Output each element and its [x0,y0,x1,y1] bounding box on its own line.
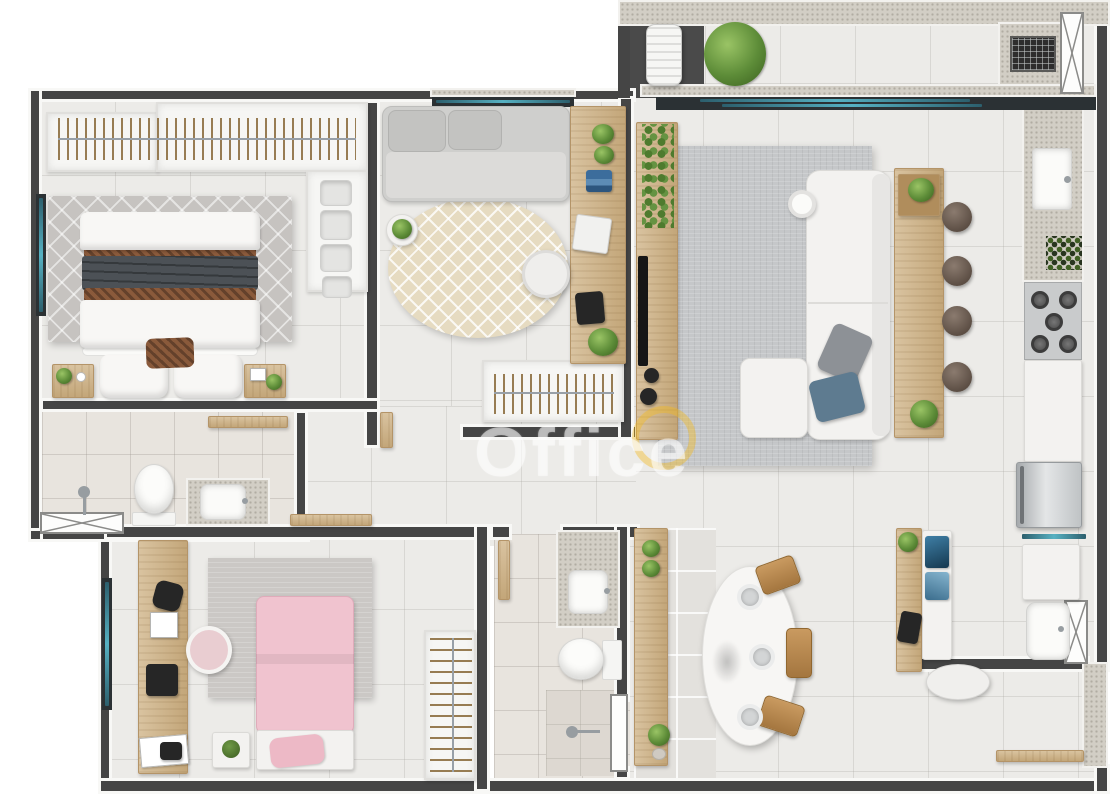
built-in-grill [1010,36,1056,72]
bed-accent-pillow [145,337,194,369]
console-plant-bottom [910,400,938,428]
bar-stool-2 [942,256,972,286]
living-side-table [788,190,816,218]
folded-linen-1 [320,180,352,206]
burner-top-left [1031,291,1049,309]
laundry-glass-shelf [1022,534,1086,539]
office-desk-plant-2 [594,146,614,164]
bed-duvet-fold [80,212,260,250]
bath2-door-leaf [498,540,510,600]
folded-linen-2 [320,210,352,240]
bath1-shower-stem [83,497,86,515]
tv [638,256,648,366]
office-sofa-pillow-2 [448,110,502,150]
nook-hutch-decor-1 [925,536,949,568]
kids-single-bed [256,596,354,774]
sideboard-plant-2 [642,560,660,577]
burner-center [1045,313,1063,331]
bath1-sink-basin [200,484,246,520]
sideboard-plant-1 [642,540,660,557]
kitchen-faucet [1064,176,1071,183]
bath1-toilet-bowl [134,464,174,514]
sofa-back-cushions [872,174,890,436]
bath2-toilet-tank [602,640,622,680]
office-desk-plant-3 [588,328,618,356]
sliding-door-glass-2 [722,104,982,107]
dining-centerpiece [712,640,742,684]
master-closet-rail [58,138,356,140]
bath1-faucet [242,498,248,504]
bath1-toilet-tank [132,512,176,526]
office-desk-chair [522,250,570,298]
wall-right-lower [1094,764,1110,794]
sideboard-plant-3 [648,724,670,746]
window-x-glyph [42,514,122,532]
bar-stool-4 [942,362,972,392]
console-plant-top [908,178,934,202]
office-sofa-seat [386,152,566,198]
kids-bed-pillow [269,733,326,768]
watermark-text: Office [474,412,690,492]
nook-desk-plant [898,532,918,552]
kids-bed-duvet [256,596,354,734]
office-closet-rail [494,392,614,394]
laundry-tub [1026,602,1070,660]
tv-panel-trailing-plant [642,124,674,228]
sofa-ottoman [740,358,808,438]
entry-granite-column [1082,662,1108,768]
place-setting-2 [749,644,775,670]
bath1-door-leaf [208,416,288,428]
office-desk-plant-1 [592,124,614,144]
sliding-door-glass-1 [700,99,970,102]
refrigerator [1016,462,1082,528]
office-desk-books [586,170,612,192]
sideboard-pot [652,748,666,760]
nightstand-right-frame [250,368,266,381]
office-closet-hangers [494,374,614,414]
gas-cooktop [1024,282,1082,360]
kids-closet-rail [452,638,454,772]
office-door-leaf [380,412,393,448]
bed-throw-blanket [82,256,258,290]
office-window-glass [436,100,570,103]
bar-stool-1 [942,202,972,232]
kids-window-glass [105,582,109,706]
wall-bottom [98,778,1110,794]
sofa-seam [808,302,888,304]
air-conditioner-unit [646,24,682,86]
bath1-window [40,512,124,534]
refrigerator-handle [1020,466,1024,524]
kids-camera [160,742,182,760]
office-sofa-pillow-1 [388,110,446,152]
nightstand-right-plant [266,374,282,390]
dining-chair-2 [786,628,812,678]
entry-bench [996,750,1084,762]
office-desk-laptop [572,214,613,255]
kids-door-leaf [290,514,372,526]
place-setting-1 [737,584,763,610]
nook-desk-chair [926,664,990,700]
burner-top-right [1059,291,1077,309]
bath2-toilet-bowl [558,638,604,680]
bath2-window [610,694,628,772]
place-setting-3 [737,704,763,730]
kids-green-decor [222,740,240,758]
wall-kids-top [104,524,490,540]
nightstand-left-cup [76,372,86,382]
master-double-bed [80,212,260,400]
kitchen-base-cabinet [1024,360,1082,462]
kids-desk-frame [150,612,178,638]
nightstand-left-plant [56,368,72,384]
office-side-table-plant [392,219,412,239]
tv-speaker-1 [644,368,659,383]
laundry-cabinet [1022,544,1080,600]
bath2-faucet [604,588,610,594]
wall-bath2-top-left [490,524,512,540]
office-desk-tablet [575,291,606,325]
kitchen-spice-rack [1046,236,1082,270]
nook-hutch-decor-2 [925,572,949,600]
kids-desk-printer [146,664,178,696]
burner-bottom-left [1031,335,1049,353]
wall-kids-right [474,524,490,792]
kids-desk-chair [186,626,232,674]
wall-right-upper [1094,0,1110,672]
bath2-shower-arm [576,730,600,733]
master-window-glass [39,198,43,312]
floor-plan-canvas: Office [0,0,1119,800]
window-x-glyph [1062,14,1082,92]
folded-linen-4 [322,276,352,298]
balcony-right-window [1060,12,1084,94]
kids-bed-fold [256,654,354,664]
bar-stool-3 [942,306,972,336]
balcony-plant [704,22,766,86]
bath2-shower-area [546,690,614,776]
tv-speaker-2 [640,388,657,405]
kids-closet-hangers [430,638,472,772]
folded-linen-3 [320,244,352,272]
burner-bottom-right [1059,335,1077,353]
bath2-sink-basin [568,570,608,614]
wall-bedroom-bottom [40,398,380,412]
laundry-faucet [1058,626,1064,632]
office-window-sill [430,88,576,97]
